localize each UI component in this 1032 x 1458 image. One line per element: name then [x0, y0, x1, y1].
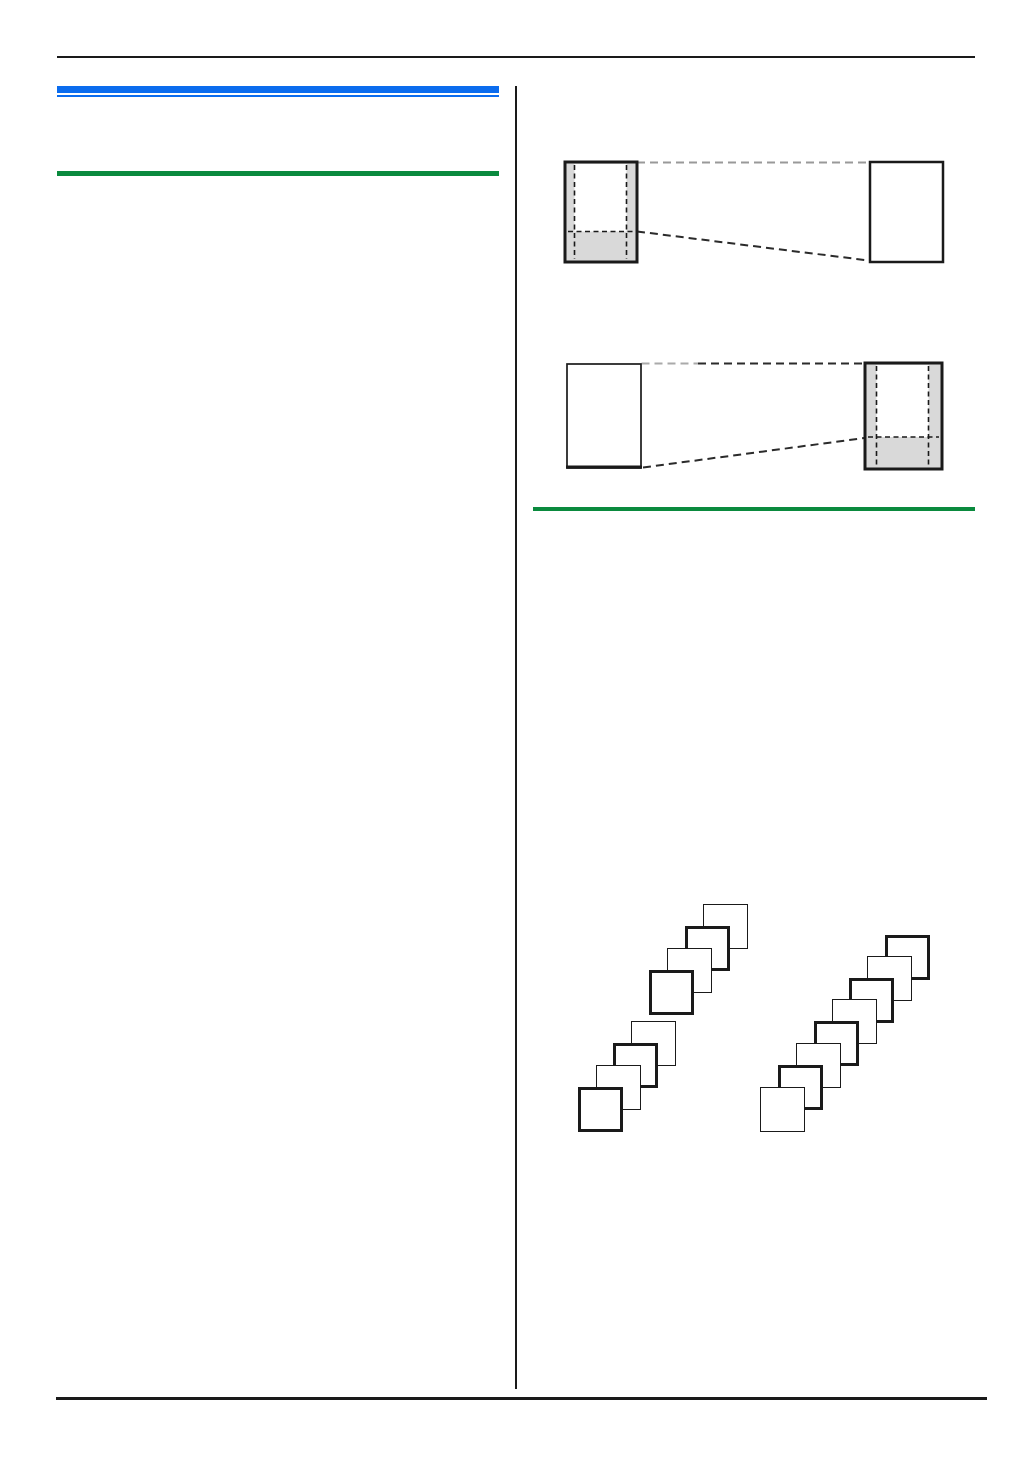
collated-stack-sheet [578, 1087, 623, 1132]
uncollated-stack-sheet [760, 1087, 805, 1132]
collate-diagram [0, 0, 1032, 1458]
collated-stack-sheet [649, 970, 694, 1015]
manual-page [0, 0, 1032, 1458]
